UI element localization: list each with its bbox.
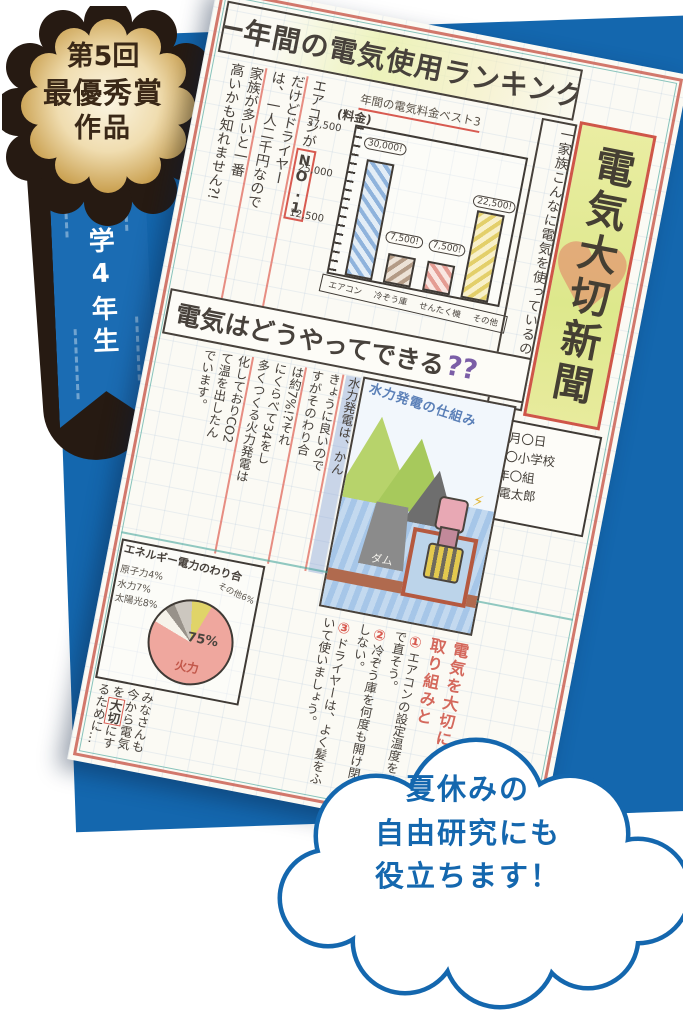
pie-side-labels: 原子力4% 水力7% 太陽光8% <box>113 563 164 615</box>
bar-callout: 7,500! <box>427 239 466 258</box>
bar-chart: 年間の電気料金ベスト3 (料金) 37,500 25,000 12,500 30… <box>286 84 539 345</box>
bubble-line-1: 夏休みの <box>316 768 620 812</box>
pie-chart-box: エネルギー電力のわり合 原子力4% 水力7% 太陽光8% その他6% 75% 火… <box>95 538 265 705</box>
bar-fridge-rect <box>383 253 416 287</box>
badge-line-work: 作品 <box>0 112 206 147</box>
bubble-line-2: 自由研究にも <box>316 812 620 856</box>
bar-other-rect <box>461 210 505 303</box>
bar-callout: 30,000! <box>363 136 408 156</box>
x-label-other: その他 <box>472 312 500 329</box>
bar-chart-plot-area: 30,000! 7,500! 7,500! 22,500! <box>326 124 528 307</box>
badge-line-round: 第5回 <box>0 40 206 75</box>
bubble-line-3: 役立ちます！ <box>316 855 620 899</box>
x-label-fridge: 冷ぞう庫 <box>373 289 409 308</box>
bubble-text: 夏休みの 自由研究にも 役立ちます！ <box>316 768 620 899</box>
badge-line-prize: 最優秀賞 <box>0 75 206 112</box>
x-label-aircon: エアコン <box>327 278 363 297</box>
turbine-drawing <box>422 542 464 584</box>
closing-text: みなさんも今から電気を大切にするために… <box>84 681 155 757</box>
bar-callout: 7,500! <box>385 230 424 249</box>
lightning-icon: ⚡ <box>471 491 486 512</box>
ribbon-dash-decoration <box>74 329 80 399</box>
award-badge-text: 第5回 最優秀賞 作品 <box>0 40 206 146</box>
x-label-washer: せんたく機 <box>418 299 462 320</box>
bars: 30,000! 7,500! 7,500! 22,500! <box>339 129 522 304</box>
bar-washer-rect <box>422 261 455 295</box>
ribbon-dash-decoration <box>135 316 141 380</box>
question-marks: ?? <box>443 350 480 386</box>
